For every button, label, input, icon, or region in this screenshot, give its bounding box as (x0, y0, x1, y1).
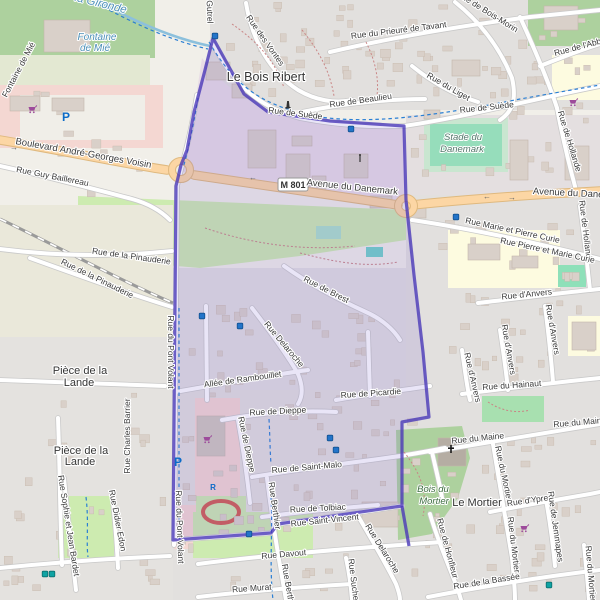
parking-icon: P (174, 455, 182, 469)
svg-text:→: → (508, 193, 516, 202)
svg-text:←: ← (483, 192, 491, 201)
bus-icon (199, 313, 205, 319)
tram-icon (546, 582, 552, 588)
tram-icon (42, 571, 48, 577)
water-label: de Mié (80, 43, 110, 54)
bus-icon (453, 214, 459, 220)
place-label: Le Bois Ribert (227, 70, 306, 84)
parking-icon: P (62, 110, 70, 124)
place-label: Lande (65, 456, 96, 468)
oneway-arrow-icon: ← (483, 192, 491, 201)
street-label: Gutrel (205, 0, 216, 24)
place-label: Lande (64, 377, 95, 389)
place-label: Le Mortier (452, 497, 502, 509)
street-label: Mortier (419, 496, 449, 507)
street-label: Bois du (417, 484, 449, 495)
svg-text:R: R (210, 483, 216, 492)
oneway-arrow-icon: ← (249, 173, 257, 182)
svg-text:P: P (174, 455, 182, 469)
street-label: Danemark (440, 144, 485, 155)
map-canvas[interactable]: M 801 PPR→←←←→ la GirondeFontainede MiéF… (0, 0, 600, 600)
svg-text:←: ← (249, 173, 257, 182)
bus-icon (327, 435, 333, 441)
water-label: Fontaine (78, 32, 117, 43)
street-label: Rue Charles Barrier (122, 398, 132, 473)
tram-icon (49, 571, 55, 577)
bus-icon (237, 323, 243, 329)
bus-icon (333, 447, 339, 453)
svg-text:P: P (62, 110, 70, 124)
bus-icon (348, 126, 354, 132)
street-label: Stade du (444, 132, 483, 143)
place-label: Pièce de la (53, 365, 108, 377)
road-shield-label: M 801 (280, 180, 305, 190)
map-svg: M 801 PPR→←←←→ la GirondeFontainede MiéF… (0, 0, 600, 600)
bus-icon (246, 531, 252, 537)
road-shield: M 801 (278, 178, 308, 191)
street-label: Rue du Pont Volant (166, 315, 176, 389)
parking-r-icon: R (210, 483, 216, 492)
oneway-arrow-icon: → (508, 193, 516, 202)
bus-icon (212, 33, 218, 39)
